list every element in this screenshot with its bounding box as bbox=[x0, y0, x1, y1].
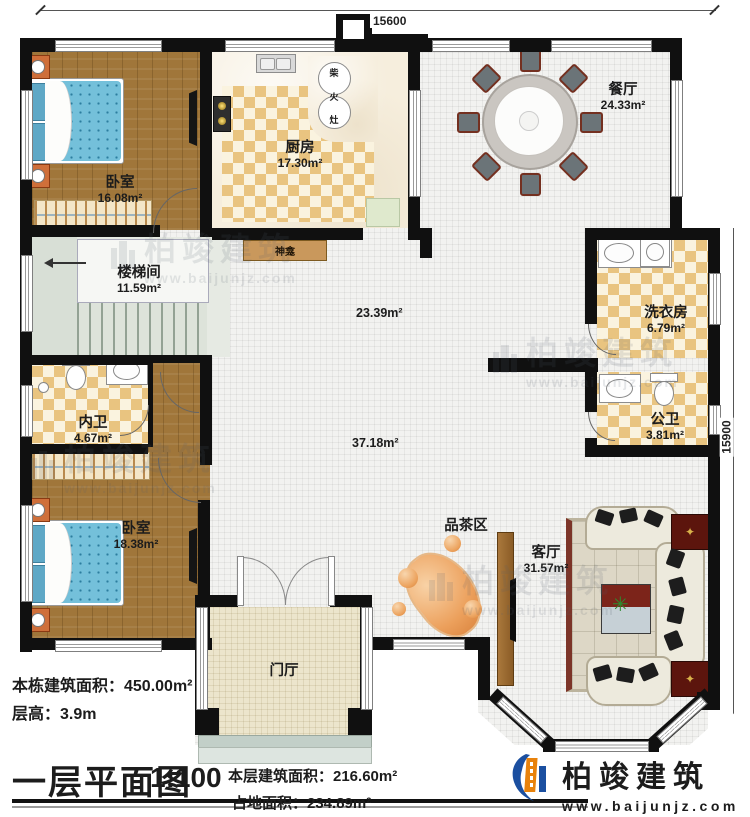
dining-chair bbox=[520, 173, 541, 196]
toilet-bowl bbox=[654, 381, 674, 406]
bed-sheet bbox=[45, 81, 72, 161]
floor-drain bbox=[38, 382, 49, 393]
wardrobe-2 bbox=[32, 452, 150, 480]
brand-logo-icon bbox=[508, 752, 552, 802]
brand-website: www.baijunjz.com bbox=[562, 798, 739, 814]
dining-chair bbox=[520, 49, 541, 72]
brand-name: 柏竣建筑 bbox=[562, 752, 739, 796]
porch-step-2 bbox=[198, 747, 372, 764]
bed-sheet bbox=[45, 523, 72, 603]
dining-chair bbox=[457, 112, 480, 133]
room-label-bath-public: 公卫3.81m² bbox=[615, 412, 715, 442]
tv-bedroom1 bbox=[189, 90, 197, 146]
open-area-lower: 37.18m² bbox=[352, 436, 399, 450]
stair-arrow bbox=[52, 262, 86, 264]
room-label-living: 客厅31.57m² bbox=[496, 545, 596, 575]
kitchen-mat bbox=[366, 198, 400, 227]
room-label-kitchen: 厨房17.30m² bbox=[250, 140, 350, 170]
laundry-sink bbox=[604, 243, 634, 263]
side-table: ✦ bbox=[671, 514, 709, 550]
bed-1 bbox=[26, 78, 124, 164]
room-label-stairwell: 楼梯间11.59m² bbox=[89, 265, 189, 295]
dining-table-center bbox=[519, 111, 539, 131]
shrine-cabinet: 神龛 bbox=[243, 240, 327, 261]
kitchen-sink bbox=[256, 54, 296, 73]
table-plant: ✳ bbox=[612, 592, 629, 617]
room-label-bedroom2: 卧室18.38m² bbox=[86, 521, 186, 551]
floor-plan-page: 柴火灶 神龛 bbox=[0, 0, 750, 817]
dining-chair bbox=[580, 112, 603, 133]
tea-stone bbox=[464, 600, 482, 618]
plan-scale: 1:100 bbox=[150, 762, 222, 794]
shrine-label: 神龛 bbox=[275, 243, 295, 258]
chimney-flue bbox=[343, 20, 364, 39]
room-label-dining: 餐厅24.33m² bbox=[573, 82, 673, 112]
dimension-top: 15600 bbox=[370, 14, 409, 28]
floor-area: 本层建筑面积：216.60m² bbox=[228, 765, 397, 786]
stair-arrowhead bbox=[44, 258, 53, 268]
entry-door-right-leaf bbox=[328, 556, 335, 606]
room-label-tea-area: 品茶区 bbox=[416, 518, 516, 535]
tea-stone bbox=[392, 602, 406, 616]
dimension-right: 15900 bbox=[720, 417, 734, 456]
floor-height: 层高：3.9m bbox=[12, 700, 96, 724]
washing-machine-drum bbox=[646, 243, 664, 261]
room-label-bath-private: 内卫4.67m² bbox=[43, 415, 143, 445]
wood-stove-label: 柴火灶 bbox=[327, 66, 341, 126]
toilet-bowl bbox=[66, 365, 86, 390]
stair-treads bbox=[77, 303, 207, 357]
tv-living bbox=[510, 578, 516, 642]
entry-door-left-leaf bbox=[237, 556, 244, 606]
brand-logo: 柏竣建筑 www.baijunjz.com bbox=[508, 752, 739, 814]
tv-bedroom2 bbox=[189, 528, 197, 584]
room-label-bedroom1: 卧室16.08m² bbox=[70, 175, 170, 205]
building-total-area: 本栋建筑面积：450.00m² bbox=[12, 672, 193, 696]
stair-landing bbox=[32, 237, 77, 357]
room-label-foyer: 门厅 bbox=[234, 663, 334, 680]
open-area-upper: 23.39m² bbox=[356, 306, 403, 320]
tea-stone bbox=[444, 535, 461, 552]
bath-sink bbox=[606, 379, 633, 398]
tea-stone bbox=[398, 568, 418, 588]
footprint-area: 占地面积：234.89m² bbox=[232, 792, 371, 813]
room-label-laundry: 洗衣房6.79m² bbox=[616, 305, 716, 335]
gas-stove bbox=[213, 96, 231, 132]
